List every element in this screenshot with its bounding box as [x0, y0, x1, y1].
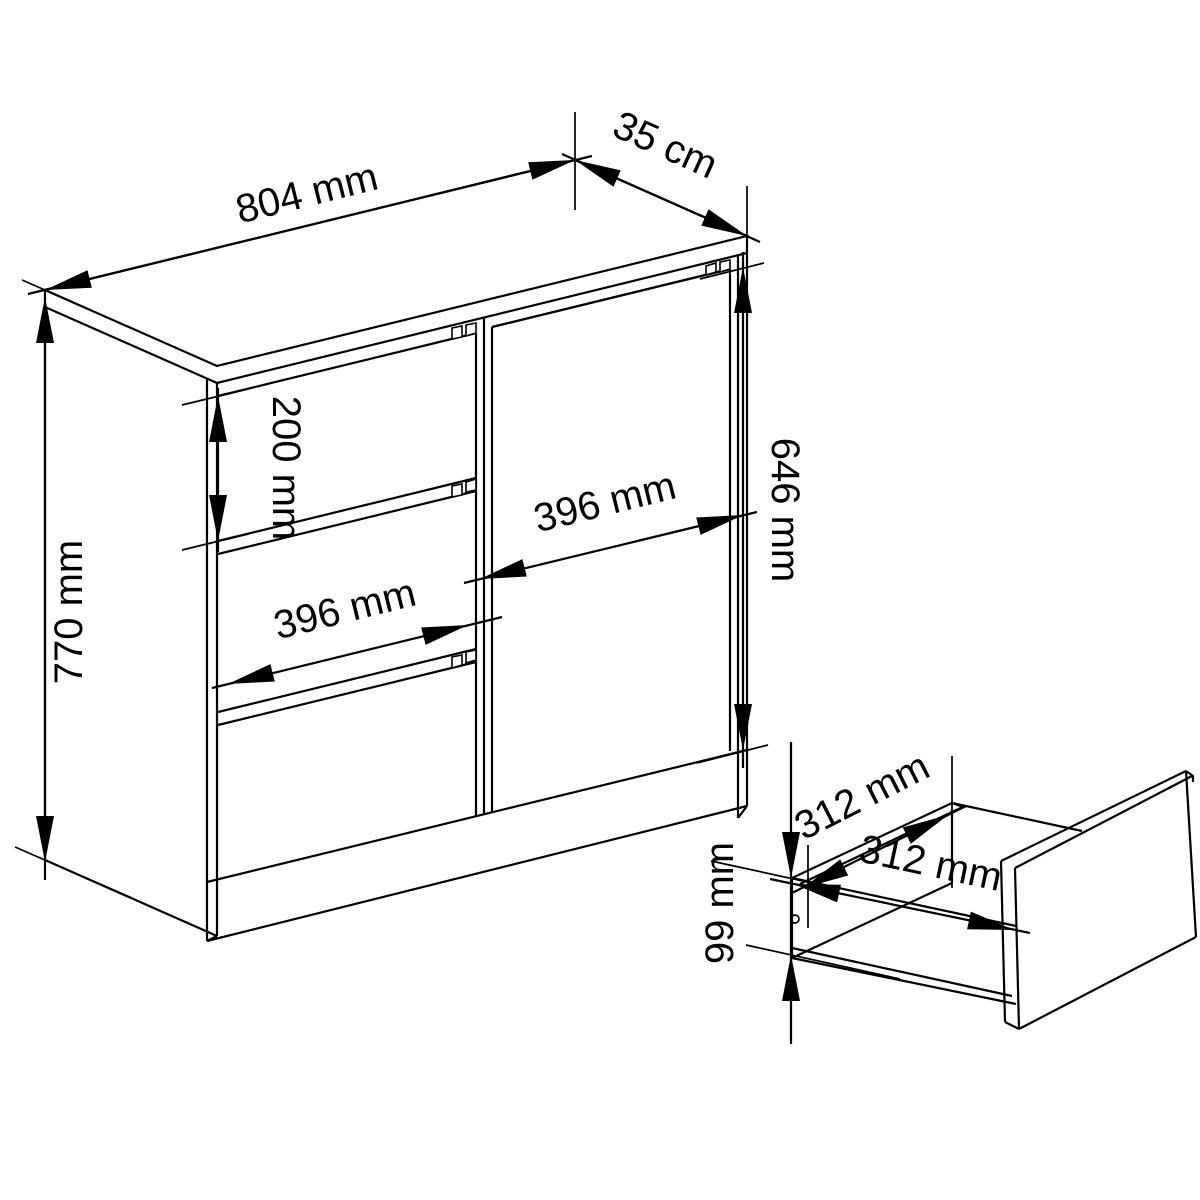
furniture-dimension-diagram: 804 mm 35 cm 770 mm 200 mm [0, 0, 1200, 1200]
technical-drawing-page: 804 mm 35 cm 770 mm 200 mm [0, 0, 1200, 1200]
dim-label-cabinet-height: 770 mm [47, 540, 91, 685]
page-background [0, 0, 1200, 1200]
dim-label-drawer-inner-height: 99 mm [698, 842, 742, 964]
dim-label-drawer-height: 200 mm [264, 396, 308, 541]
dim-label-door-height: 646 mm [763, 438, 807, 583]
